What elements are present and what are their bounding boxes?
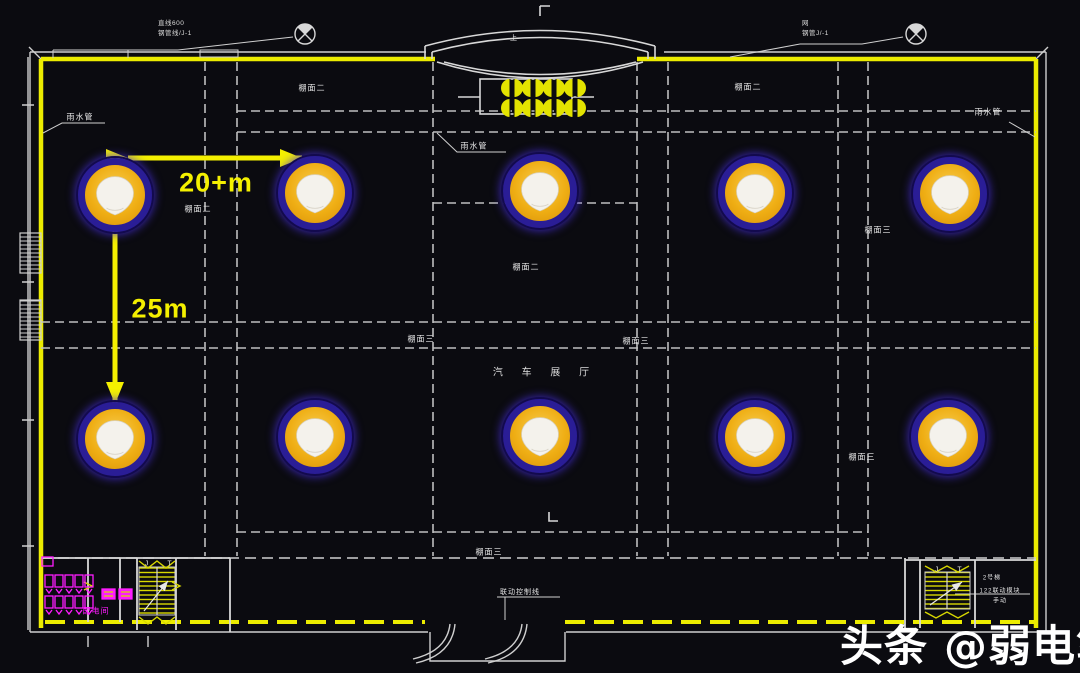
- wireless-ap-icon: [278, 156, 352, 230]
- plan-label: 上: [510, 33, 518, 43]
- watermark: 头条 @弱电笔记: [840, 612, 1080, 673]
- wireless-ap-icon: [911, 400, 985, 474]
- plan-label: 棚面二: [513, 262, 540, 273]
- plan-label: 棚面三: [408, 334, 435, 345]
- annotation-line: 钢管线/J-1: [158, 29, 192, 39]
- plan-label: 棚面三: [849, 452, 876, 463]
- wireless-ap-icon: [718, 400, 792, 474]
- plan-label: 雨水管: [461, 141, 488, 152]
- dimension-horizontal-label: 20+m: [179, 168, 253, 199]
- plan-label: 棚面二: [299, 83, 326, 94]
- watermark-handle: @弱电笔记: [944, 622, 1080, 672]
- plan-label: J: [935, 567, 940, 574]
- plan-label: 棚面三: [476, 547, 503, 558]
- plan-label: 棚面三: [623, 336, 650, 347]
- canopy-door-icons: [501, 79, 586, 117]
- plan-label: 联动控制线: [500, 587, 540, 597]
- watermark-prefix: 头条: [840, 622, 944, 672]
- plan-label: 雨水管: [975, 107, 1002, 118]
- plan-label: T: [957, 567, 962, 574]
- plan-label: 雨水管: [67, 112, 94, 123]
- annotation-line: 钢管J/-1: [802, 29, 829, 39]
- plan-label: 配电间: [83, 606, 110, 617]
- plan-label: 棚面二: [735, 82, 762, 93]
- wall-lines: [41, 59, 1036, 628]
- plan-label: T: [167, 561, 172, 568]
- plan-label: 棚面三: [865, 225, 892, 236]
- wireless-ap-icon: [78, 158, 152, 232]
- riser-annotation-right: 网 钢管J/-1: [802, 19, 829, 39]
- plan-label: 122联动模块: [979, 586, 1020, 595]
- plan-label: 2号梯: [983, 573, 1001, 582]
- wireless-ap-icon: [913, 157, 987, 231]
- grid-dashed-lines: [41, 62, 1036, 558]
- wireless-ap-icon: [503, 154, 577, 228]
- plan-label: J: [145, 561, 150, 568]
- stairs-icon: [139, 561, 175, 624]
- riser-annotation-left: 直线600 钢管线/J-1: [158, 19, 192, 39]
- annotation-line: 网: [802, 19, 829, 29]
- wireless-ap-icon: [278, 400, 352, 474]
- detail-marker-icon: [295, 24, 315, 44]
- floor-plan-linework: [0, 0, 1080, 673]
- hall-name-label: 汽 车 展 厅: [493, 364, 597, 379]
- wireless-ap-icon: [78, 402, 152, 476]
- plan-label: 手动: [993, 596, 1007, 605]
- plan-label: 棚面二: [185, 204, 212, 215]
- stairs-icon: [925, 566, 970, 618]
- cad-floor-plan: 雨水管雨水管雨水管棚面二棚面二棚面二棚面二棚面三棚面二棚面三棚面三棚面二灯棚面三…: [0, 0, 1080, 673]
- wireless-ap-icon: [718, 156, 792, 230]
- wireless-ap-icon: [503, 399, 577, 473]
- dimension-vertical-label: 25m: [131, 294, 188, 325]
- detail-marker-icon: [906, 24, 926, 44]
- annotation-line: 直线600: [158, 19, 192, 29]
